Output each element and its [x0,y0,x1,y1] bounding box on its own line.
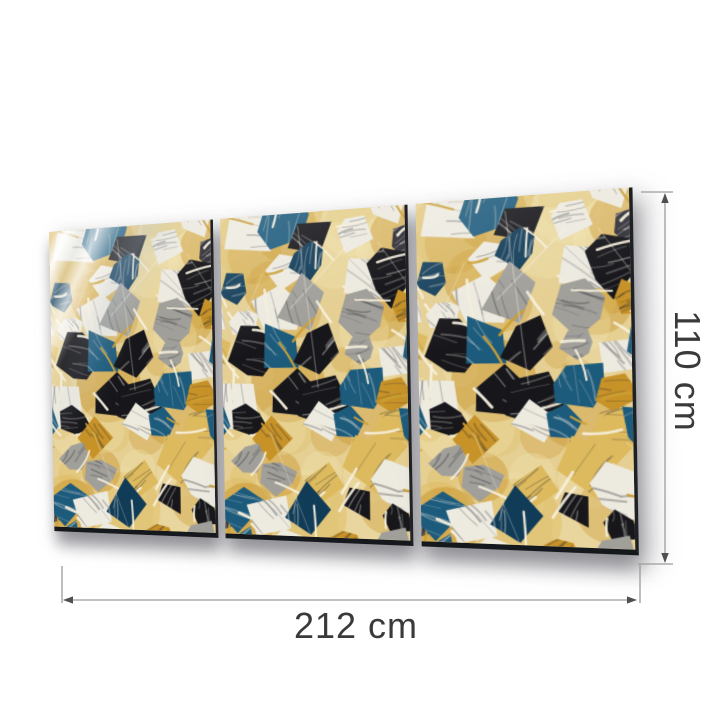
arrow-left-icon [63,596,73,603]
artwork-panel-center [220,205,413,546]
mosaic-canvas [416,188,635,550]
artwork-panel-left [49,220,218,538]
mosaic-canvas [49,220,215,533]
arrow-up-icon [661,193,668,203]
height-dimension-label: 110 cm [667,301,707,441]
artwork-panel-right [416,187,639,555]
mosaic-canvas [220,205,410,541]
arrow-right-icon [627,596,637,603]
triptych-artwork [49,187,639,555]
product-image-background: 212 cm 110 cm [0,0,720,720]
arrow-down-icon [661,553,668,563]
width-dimension-label: 212 cm [256,606,456,646]
